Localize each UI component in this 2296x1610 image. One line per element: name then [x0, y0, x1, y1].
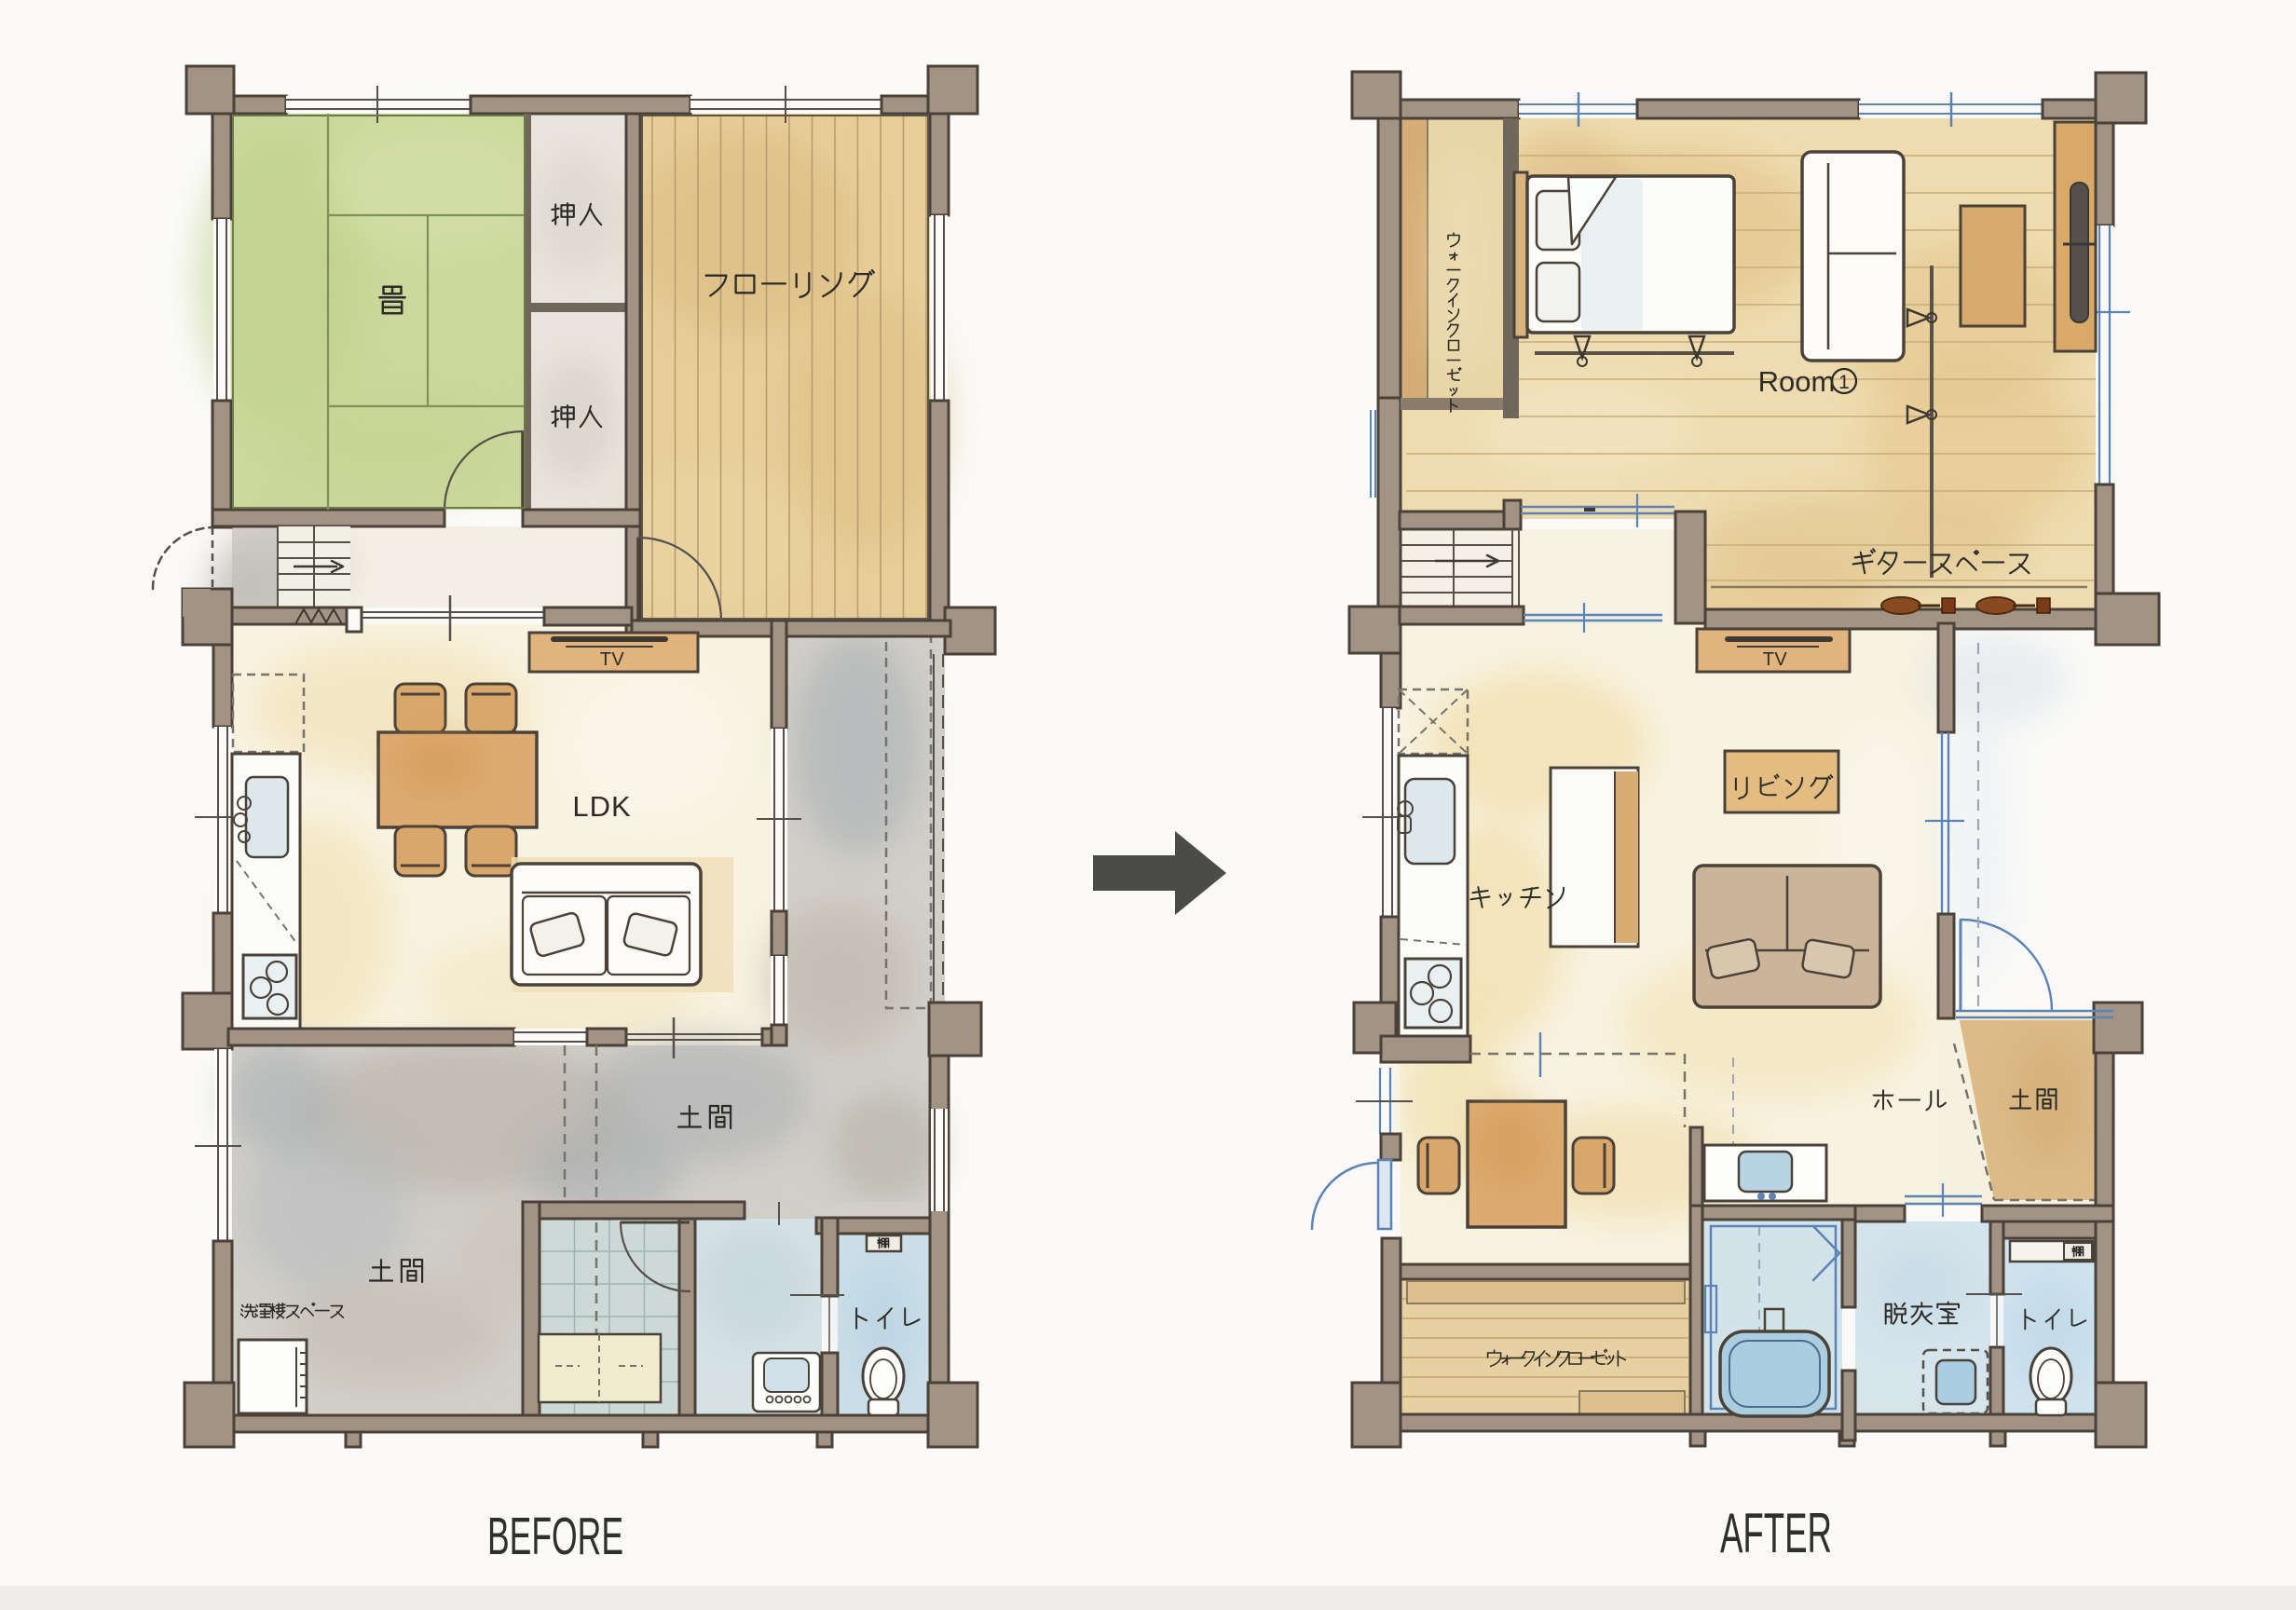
svg-text:TV: TV — [600, 649, 625, 670]
svg-text:BEFORE: BEFORE — [487, 1507, 623, 1566]
svg-text:TV: TV — [1763, 649, 1788, 670]
svg-text:AFTER: AFTER — [1720, 1502, 1832, 1564]
svg-text:LDK: LDK — [572, 790, 631, 823]
svg-text:Room: Room — [1758, 365, 1836, 398]
svg-text:1: 1 — [1838, 372, 1850, 393]
